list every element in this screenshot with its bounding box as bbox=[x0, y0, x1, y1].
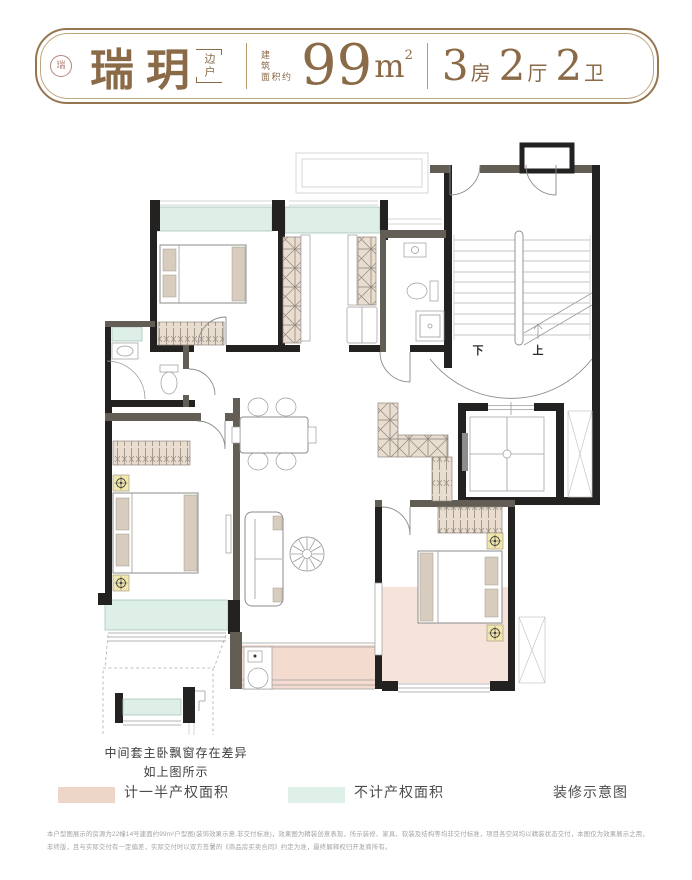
divider bbox=[246, 43, 247, 89]
staircase: 下 上 bbox=[430, 165, 592, 398]
floor-plan: 下 上 bbox=[86, 135, 606, 735]
area-value: 99 bbox=[301, 38, 372, 94]
bedroom-1 bbox=[160, 245, 246, 303]
bathroom-2 bbox=[404, 243, 444, 341]
bay-window-note: 中间套主卧飘窗存在差异 如上图所示 bbox=[80, 744, 272, 782]
top-shaft bbox=[522, 145, 572, 171]
disclaimer-line-2: 非终版，且与实际交付有一定偏差，实际交付时以双方签署的《商品房买卖合同》约定为准… bbox=[47, 842, 653, 855]
living-room bbox=[226, 512, 324, 606]
disclaimer: 本户型图展示的房源为22幢14号建面约99m²户型图(装饰效果示意,非交付标准)… bbox=[47, 829, 653, 854]
room-count-bath: 2卫 bbox=[555, 43, 604, 89]
master-bedroom bbox=[113, 475, 198, 591]
disclaimer-line-1: 本户型图展示的房源为22幢14号建面约99m²户型图(装饰效果示意,非交付标准)… bbox=[47, 829, 653, 842]
area-unit: m2 bbox=[374, 47, 413, 85]
legend-swatch-no-property bbox=[288, 787, 345, 803]
dining-area bbox=[232, 398, 316, 470]
balcony bbox=[244, 647, 272, 689]
stair-up-label: 上 bbox=[533, 343, 544, 357]
edge-unit-tag: 边户 bbox=[196, 49, 222, 83]
room-count-bedrooms: 3房 bbox=[442, 43, 491, 89]
header-content: 瑞玥 边户 建筑 面积约 99 m2 3房 2厅 2卫 bbox=[37, 30, 657, 102]
area-prefix: 建筑 面积约 bbox=[261, 50, 297, 83]
stair-down-label: 下 bbox=[473, 344, 484, 357]
divider bbox=[427, 43, 428, 89]
plan-caption: 装修示意图 bbox=[553, 782, 628, 802]
legend-swatch-half-property bbox=[58, 787, 115, 803]
detail-inset bbox=[103, 635, 226, 735]
header-plaque: 瑞 瑞玥 边户 建筑 面积约 99 m2 3房 2厅 2卫 bbox=[35, 28, 659, 104]
legend-label-no-property: 不计产权面积 bbox=[354, 782, 444, 802]
elevator bbox=[462, 402, 592, 497]
room-count-living: 2厅 bbox=[499, 43, 548, 89]
legend-label-half-property: 计一半产权面积 bbox=[124, 782, 229, 802]
brand-title: 瑞玥 bbox=[90, 34, 202, 98]
